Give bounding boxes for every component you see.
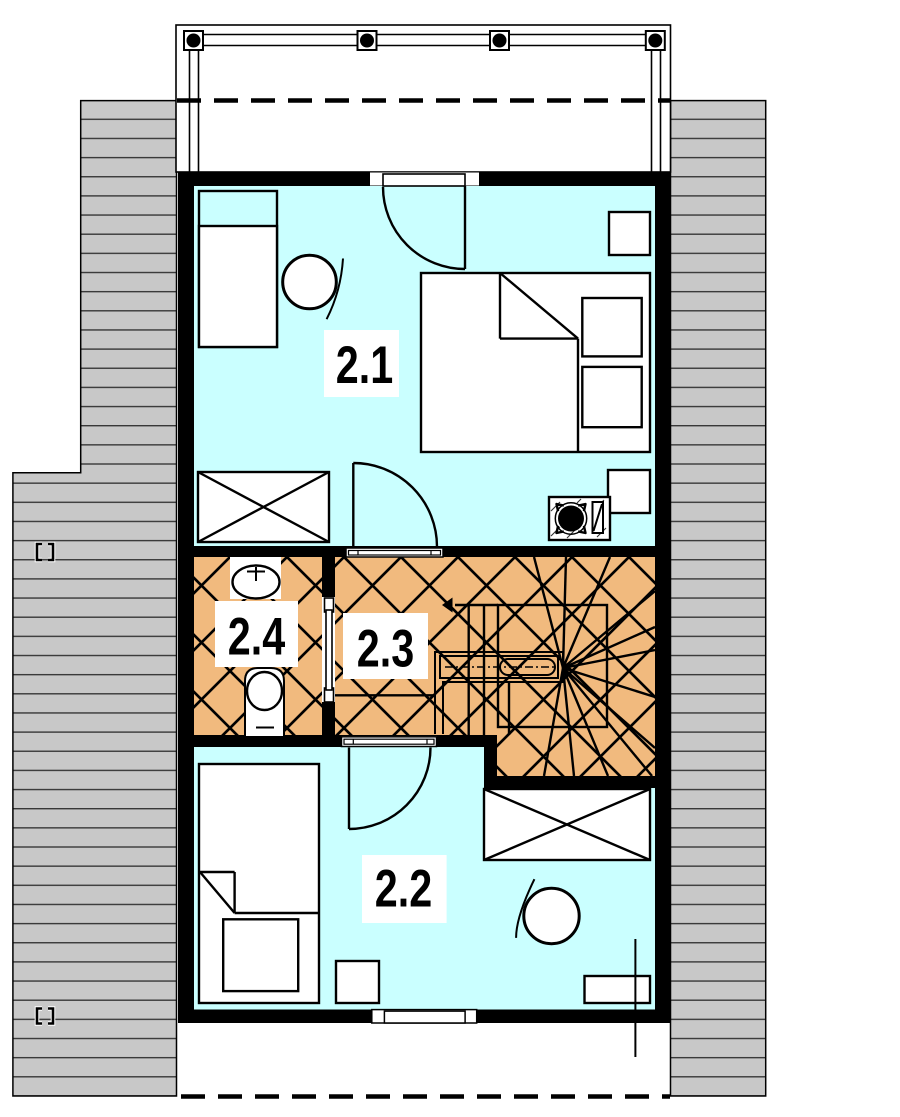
- svg-text:2.1: 2.1: [336, 336, 393, 395]
- svg-text:2.3: 2.3: [357, 620, 414, 679]
- svg-text:2.4: 2.4: [228, 608, 286, 667]
- svg-text:2.2: 2.2: [375, 860, 432, 919]
